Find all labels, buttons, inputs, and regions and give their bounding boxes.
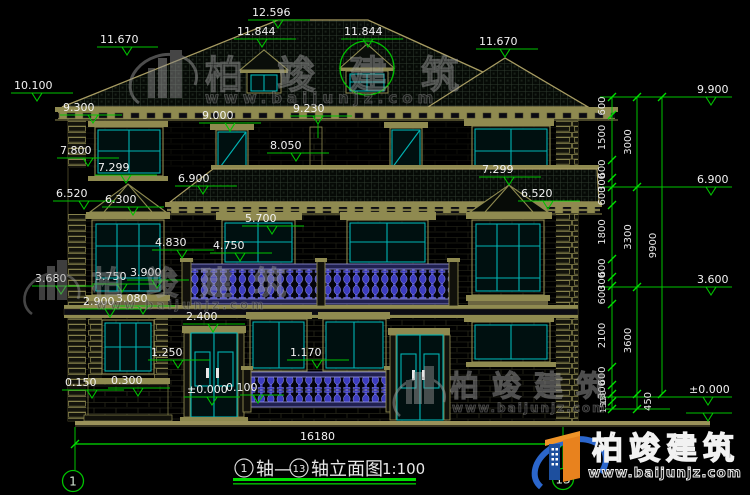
watermark-url: www.baijunjz.com bbox=[205, 89, 438, 107]
porch-balustrade bbox=[241, 366, 396, 412]
svg-text:7.299: 7.299 bbox=[482, 163, 514, 176]
scale-label: 1:100 bbox=[382, 460, 425, 478]
svg-text:6.300: 6.300 bbox=[105, 193, 137, 206]
svg-text:www.baijunjz.com: www.baijunjz.com bbox=[452, 401, 607, 415]
svg-text:6.520: 6.520 bbox=[56, 187, 88, 200]
logo-tower-orange bbox=[563, 436, 580, 482]
svg-text:600: 600 bbox=[597, 186, 608, 205]
entry-door-left bbox=[180, 326, 248, 421]
svg-text:柏竣建筑: 柏竣建筑 bbox=[450, 369, 618, 403]
svg-text:9900: 9900 bbox=[648, 233, 659, 258]
svg-text:6.900: 6.900 bbox=[697, 173, 729, 186]
marker-6900-right: 6.900 bbox=[694, 173, 732, 195]
bay-plinth bbox=[84, 415, 172, 421]
svg-text:6.520: 6.520 bbox=[521, 187, 553, 200]
svg-text:1: 1 bbox=[69, 475, 77, 489]
svg-text:450: 450 bbox=[643, 392, 654, 411]
svg-text:柏竣建筑: 柏竣建筑 bbox=[92, 264, 308, 302]
svg-text:8.050: 8.050 bbox=[270, 139, 302, 152]
wall-pier bbox=[310, 127, 322, 168]
svg-text:4.750: 4.750 bbox=[213, 239, 245, 252]
svg-text:1800: 1800 bbox=[597, 219, 608, 244]
svg-text:7.299: 7.299 bbox=[98, 161, 130, 174]
logo-tower-blue bbox=[549, 444, 560, 480]
svg-text:0.300: 0.300 bbox=[111, 374, 143, 387]
svg-text:11.844: 11.844 bbox=[344, 25, 383, 38]
svg-text:3.600: 3.600 bbox=[697, 273, 729, 286]
marker-roof-left: 11.670 bbox=[97, 33, 158, 55]
svg-text:0.150: 0.150 bbox=[65, 376, 97, 389]
svg-text:0.100: 0.100 bbox=[226, 381, 258, 394]
svg-text:www.baijunjz.com: www.baijunjz.com bbox=[96, 298, 267, 312]
svg-text:11.670: 11.670 bbox=[479, 35, 518, 48]
svg-text:13: 13 bbox=[293, 464, 306, 475]
svg-text:5.700: 5.700 bbox=[245, 212, 277, 225]
svg-text:4.830: 4.830 bbox=[155, 236, 187, 249]
marker-9900-right: 9.900 bbox=[694, 83, 732, 105]
svg-text:11.670: 11.670 bbox=[100, 33, 139, 46]
svg-text:1: 1 bbox=[241, 462, 248, 475]
drawing-title: 1 轴— 13 轴立面图 1:100 bbox=[233, 459, 425, 485]
marker-zero-right: ±0.000 bbox=[686, 383, 732, 405]
axis-bubble-1: 1 bbox=[63, 471, 84, 492]
svg-text:1.250: 1.250 bbox=[151, 346, 183, 359]
marker-3600-right: 3.600 bbox=[694, 273, 732, 295]
ground-line bbox=[75, 421, 710, 426]
svg-text:±0.000: ±0.000 bbox=[187, 383, 228, 396]
eave-cornice bbox=[55, 107, 618, 120]
svg-text:±0.000: ±0.000 bbox=[689, 383, 730, 396]
right-dim-chains: 600 1500 600 300 600 1800 600 300 600 21… bbox=[597, 93, 732, 413]
svg-text:600: 600 bbox=[597, 285, 608, 304]
total-width-dim: 16180 bbox=[300, 430, 335, 443]
cad-elevation-screenshot: 12.596 11.670 11.844 11.844 11.670 10.10… bbox=[0, 0, 750, 495]
dim-label: 12.596 bbox=[252, 6, 291, 19]
marker-eave-left: 10.100 bbox=[11, 79, 73, 101]
logo-brand-text: 柏竣建筑 bbox=[592, 431, 740, 467]
svg-text:3300: 3300 bbox=[623, 224, 634, 249]
title-end: 轴立面图 bbox=[311, 459, 383, 480]
svg-text:1500: 1500 bbox=[597, 125, 608, 150]
svg-text:6.900: 6.900 bbox=[178, 172, 210, 185]
svg-text:9.000: 9.000 bbox=[202, 109, 234, 122]
svg-text:2100: 2100 bbox=[597, 323, 608, 348]
svg-text:1.170: 1.170 bbox=[290, 346, 322, 359]
logo-url-text: www.baijunjz.com bbox=[588, 465, 742, 481]
svg-text:9.900: 9.900 bbox=[697, 83, 729, 96]
svg-text:10.100: 10.100 bbox=[14, 79, 53, 92]
brand-logo: 柏竣建筑 www.baijunjz.com bbox=[535, 431, 742, 487]
window-lintel bbox=[88, 121, 168, 127]
svg-text:9.300: 9.300 bbox=[63, 101, 95, 114]
svg-text:7.800: 7.800 bbox=[60, 144, 92, 157]
title-mid: 轴— bbox=[256, 459, 292, 480]
svg-text:11.844: 11.844 bbox=[237, 25, 276, 38]
svg-text:3600: 3600 bbox=[623, 328, 634, 353]
marker-ground-right bbox=[686, 413, 732, 421]
elevation-drawing: 12.596 11.670 11.844 11.844 11.670 10.10… bbox=[0, 0, 750, 495]
svg-text:3000: 3000 bbox=[623, 129, 634, 154]
chain-dim: 600 bbox=[597, 96, 608, 115]
